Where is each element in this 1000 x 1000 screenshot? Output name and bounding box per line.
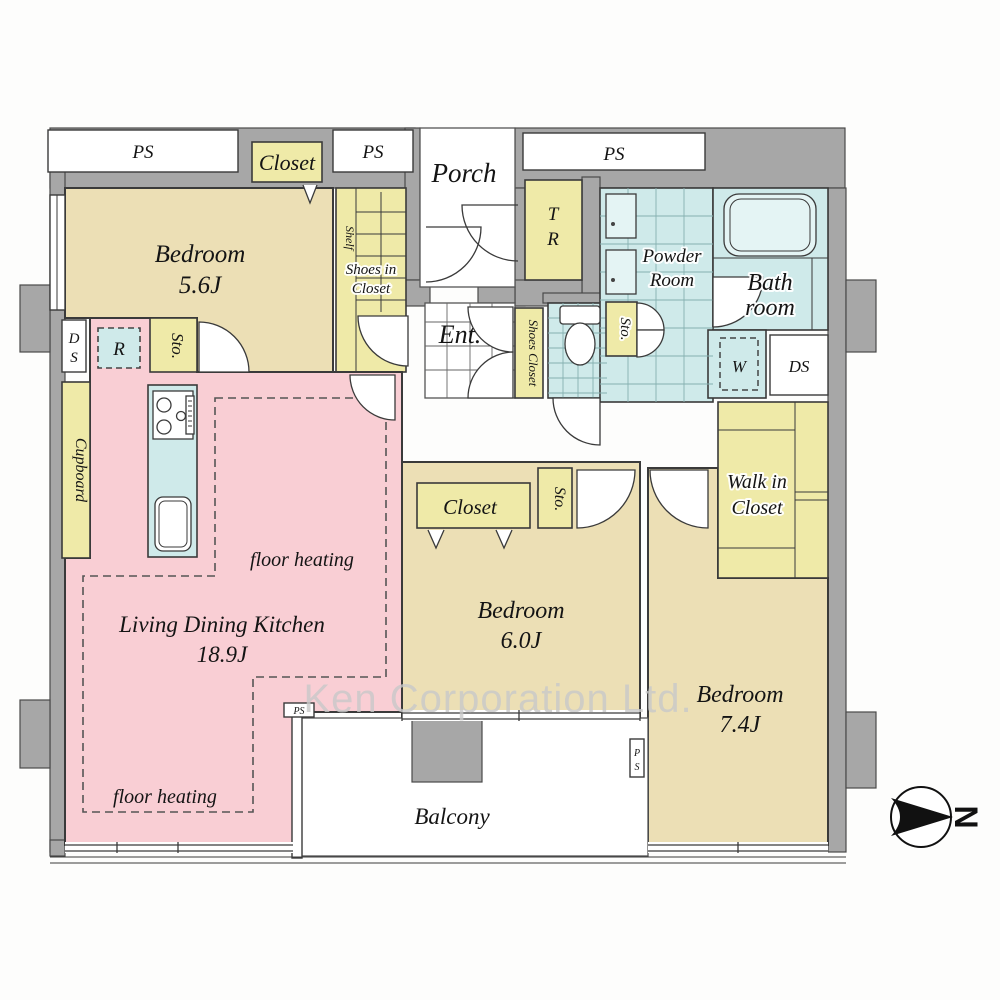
- bedroom2-name: Bedroom: [477, 598, 564, 624]
- trunk-room-label-1: T: [548, 204, 560, 225]
- shelf-label: Shelf: [343, 226, 357, 252]
- balcony-railing: [50, 857, 846, 863]
- vanity-1-faucet: [611, 222, 615, 226]
- vanity-2-faucet: [611, 278, 615, 282]
- vanity-1: [606, 194, 636, 238]
- bedroom1-name: Bedroom: [155, 241, 246, 268]
- bedroom3-name: Bedroom: [696, 682, 783, 708]
- cupboard-label: Cupboard: [72, 438, 89, 503]
- wall-left-pilaster-1: [20, 285, 50, 352]
- ps-bedroom3-label-p: P: [633, 748, 640, 759]
- wall-right: [828, 188, 846, 852]
- wall-above-toilet: [543, 293, 607, 303]
- washer-label: W: [732, 357, 748, 376]
- stove-grill: [186, 396, 194, 434]
- ps-balcony-label: PS: [292, 706, 304, 717]
- toilet-tank: [560, 306, 600, 324]
- kitchen-sink: [155, 497, 191, 551]
- shoes-in-closet-label-1: Shoes in: [346, 262, 396, 278]
- storage-powder-label: Sto.: [617, 318, 633, 341]
- ps-label-1: PS: [131, 142, 154, 163]
- washroom-door: [553, 398, 600, 445]
- vanity-2: [606, 250, 636, 294]
- storage-hall-label: Sto.: [551, 487, 568, 511]
- powder-room-label-2: Room: [649, 270, 694, 291]
- shoes-in-closet-label-2: Closet: [352, 281, 391, 297]
- bathtub: [724, 194, 816, 256]
- trunk-room-label-2: R: [546, 229, 559, 250]
- porch-label: Porch: [431, 158, 497, 188]
- floor-heating-label-1: floor heating: [250, 549, 354, 571]
- balcony-partition-wall: [292, 712, 302, 858]
- bedroom1-size: 5.6J: [179, 272, 223, 299]
- wall-tr-powder: [582, 177, 600, 303]
- floor-plan-drawing: Ken Corporation Ltd. N PS Closet PS Porc…: [0, 0, 1000, 1000]
- powder-room-label-1: Powder: [641, 246, 702, 267]
- entrance-label: Ent.: [438, 320, 482, 349]
- compass: N: [891, 787, 984, 847]
- duct-left-label-d: D: [68, 331, 80, 347]
- bathroom-label-2: room: [745, 295, 795, 321]
- bedroom2-closet-label: Closet: [443, 495, 498, 519]
- wall-bottom-left-corner: [50, 840, 65, 856]
- walk-in-closet-label-2: Closet: [731, 497, 783, 519]
- compass-north-label: N: [948, 805, 984, 828]
- walk-in-closet-label-1: Walk in: [727, 471, 787, 493]
- wall-right-pilaster-2: [846, 712, 876, 788]
- stove-burner-3: [177, 412, 186, 421]
- ps-bedroom3-label-s: S: [635, 762, 640, 773]
- balcony-column: [412, 720, 482, 782]
- ldk-size: 18.9J: [197, 642, 249, 667]
- refrigerator-label: R: [112, 339, 125, 360]
- ps-label-3: PS: [602, 144, 625, 165]
- stove-burner-2: [157, 420, 171, 434]
- floor-plan: Ken Corporation Ltd. N PS Closet PS Porc…: [0, 0, 1000, 1000]
- bedroom2-size: 6.0J: [501, 628, 543, 654]
- duct-left-label-s: S: [70, 350, 78, 366]
- wall-entry-right: [478, 287, 515, 303]
- storage-kitchen-label: Sto.: [168, 333, 187, 359]
- wall-right-pilaster-1: [846, 280, 876, 352]
- ldk-name: Living Dining Kitchen: [118, 612, 325, 637]
- bathroom-label-1: Bath: [747, 270, 792, 296]
- bedroom3-size: 7.4J: [720, 712, 762, 738]
- ps-label-2: PS: [361, 142, 384, 163]
- balcony-label: Balcony: [414, 804, 490, 829]
- shoes-closet-label: Shoes Closet: [526, 320, 541, 387]
- watermark: Ken Corporation Ltd.: [303, 677, 692, 721]
- wall-left-pilaster-2: [20, 700, 50, 768]
- bedroom1-closet-label: Closet: [259, 150, 316, 175]
- stove-burner-1: [157, 398, 171, 412]
- duct-right-label: DS: [788, 357, 810, 376]
- floor-heating-label-2: floor heating: [113, 786, 217, 808]
- toilet-bowl: [565, 323, 595, 365]
